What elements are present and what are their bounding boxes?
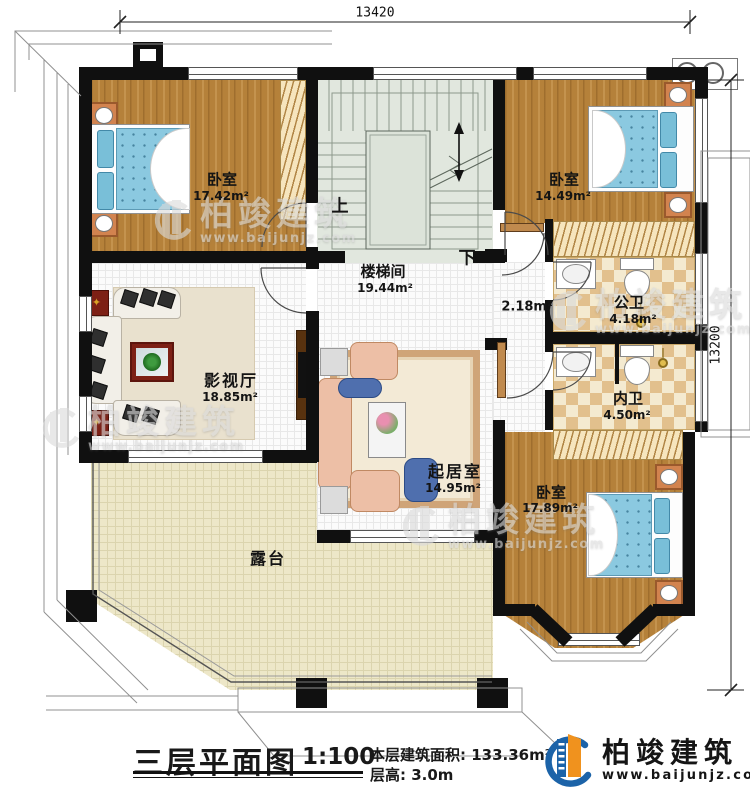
stairwell-name: 楼梯间	[360, 265, 405, 280]
pillow	[97, 130, 114, 168]
media-room-area: 18.85m²	[202, 391, 258, 403]
stairwell-floor	[317, 79, 493, 263]
brand-website: www.baijunjz.com	[602, 769, 750, 783]
person-figure	[338, 378, 382, 398]
wall-bath-west	[545, 219, 553, 262]
brand-logo: 柏竣建筑 www.baijunjz.com	[540, 730, 750, 792]
shower-knob-icon	[658, 358, 668, 368]
wall-bay-right	[653, 604, 695, 616]
public-bathroom-name: 公卫	[614, 296, 644, 311]
dimension-top: 13420	[355, 6, 394, 21]
chimney	[133, 42, 163, 68]
dimension-right: 13200	[709, 325, 724, 364]
floor-height-text: 层高: 3.0m	[370, 764, 453, 785]
closet-bedroom-top-right	[553, 221, 695, 257]
pillow	[97, 172, 114, 210]
nightstand-icon	[655, 464, 683, 490]
bedroom-top-left-name: 卧室	[207, 173, 237, 188]
pillow	[660, 152, 677, 188]
floor-area-text: 本层建筑面积: 133.36m²	[370, 744, 551, 765]
title-underline-thin	[133, 777, 363, 778]
window-north-1	[188, 67, 298, 80]
nightstand-icon	[655, 580, 683, 606]
plan-scale: 1:100	[302, 744, 375, 770]
terrace-post	[477, 678, 508, 708]
media-room-name: 影视厅	[204, 373, 258, 389]
bedroom-bottom-right-name: 卧室	[536, 486, 566, 501]
terrace-post	[296, 678, 327, 708]
inner-bathroom-name: 内卫	[613, 392, 643, 407]
toilet-tank-icon	[620, 345, 654, 357]
bedroom-top-right-name: 卧室	[549, 173, 579, 188]
window-east-bath2	[695, 350, 708, 422]
wall-bath-west	[545, 390, 553, 430]
sink-icon	[556, 347, 596, 377]
wall-bedroom3-east	[683, 432, 695, 616]
window-north-3	[533, 67, 647, 80]
window-west-2	[79, 396, 92, 432]
floor-plan-canvas: 柏竣建筑 www.baijunjz.com 柏竣建筑 www.baijunjz.…	[0, 0, 750, 798]
pillow	[660, 112, 677, 148]
wall-bedroom1-south	[80, 251, 306, 263]
wall-stub	[485, 249, 507, 262]
brand-logo-icon	[540, 730, 594, 792]
door-leaf	[500, 223, 544, 232]
pillow	[654, 538, 670, 574]
sofa-chair	[350, 342, 398, 380]
wall-bath-west	[545, 344, 553, 352]
bedroom-bottom-right-area: 17.89m²	[522, 502, 578, 514]
wall-stub	[317, 251, 345, 263]
wall-bay-left	[493, 604, 535, 616]
wall-bedroom1-stair	[306, 67, 318, 203]
wall-bath-divider	[545, 332, 696, 344]
closet-bedroom-bottom-right	[553, 430, 683, 460]
nightstand-icon	[664, 82, 692, 108]
side-table	[320, 348, 348, 376]
wall-stair-east	[493, 67, 505, 210]
stair-down-label: 下	[459, 251, 476, 268]
bedroom-top-left-area: 17.42m²	[193, 190, 249, 202]
brand-name: 柏竣建筑	[602, 738, 750, 769]
public-bathroom-area: 4.18m²	[609, 313, 656, 325]
door-leaf	[497, 342, 506, 398]
window-east-bedroom	[695, 98, 708, 203]
living-room-name: 起居室	[428, 464, 482, 480]
plan-title: 三层平面图	[133, 738, 298, 782]
inner-bathroom-area: 4.50m²	[603, 409, 650, 421]
terrace-name: 露台	[250, 551, 286, 567]
side-table	[320, 486, 348, 514]
sink-icon	[556, 259, 596, 289]
hallway-area: 2.18m²	[501, 301, 552, 314]
window-north-2	[373, 67, 517, 80]
window-east-bath1	[695, 253, 708, 325]
plant-icon	[143, 353, 161, 371]
title-underline-thick	[133, 771, 363, 774]
stair-up-label: 上	[332, 199, 349, 216]
window-living-south	[350, 530, 475, 543]
wall-media-east	[306, 311, 319, 462]
toilet-tank-icon	[620, 258, 654, 270]
bath-partition	[615, 344, 619, 384]
window-media-south	[128, 450, 263, 463]
wall-media-east	[306, 263, 319, 269]
stairwell-area: 19.44m²	[357, 282, 413, 294]
terrace-post	[66, 590, 97, 622]
nightstand-icon	[664, 192, 692, 218]
tv-icon	[298, 352, 306, 398]
pillow	[654, 498, 670, 534]
watermark-logo-icon	[36, 404, 80, 454]
window-bay	[558, 633, 640, 646]
window-west-1	[79, 296, 92, 332]
sofa-chair	[350, 470, 400, 512]
flower-decor-icon	[376, 412, 398, 434]
bedroom-top-right-area: 14.49m²	[535, 190, 591, 202]
wall-bedroom3-west	[493, 420, 505, 616]
wardrobe-bedroom-top-left	[280, 80, 306, 220]
living-room-area: 14.95m²	[425, 482, 481, 494]
nightstand-icon	[90, 210, 118, 237]
